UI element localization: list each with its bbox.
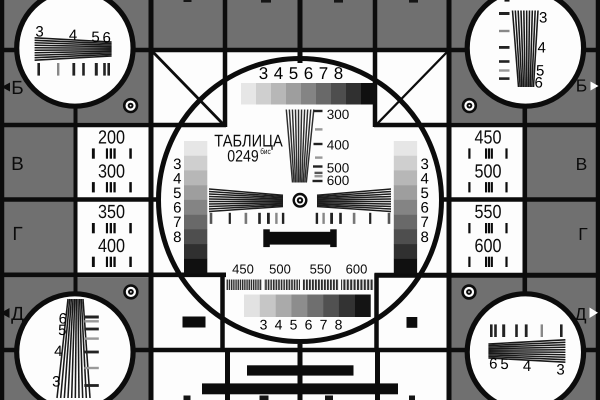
svg-text:300: 300 <box>327 107 350 122</box>
svg-text:6: 6 <box>103 30 111 47</box>
svg-text:8: 8 <box>421 229 429 246</box>
svg-text:3: 3 <box>539 10 547 27</box>
svg-text:Г: Г <box>578 224 588 244</box>
svg-text:В: В <box>576 154 588 174</box>
svg-text:600: 600 <box>327 173 350 188</box>
svg-text:8: 8 <box>334 64 343 83</box>
svg-text:4: 4 <box>69 27 77 44</box>
svg-text:Б: Б <box>576 76 587 96</box>
svg-text:550: 550 <box>475 202 502 223</box>
svg-text:В: В <box>11 154 24 175</box>
svg-text:6: 6 <box>304 64 313 83</box>
svg-text:5: 5 <box>500 356 508 373</box>
svg-text:7: 7 <box>319 64 328 83</box>
svg-text:3: 3 <box>35 24 43 41</box>
svg-text:450: 450 <box>232 262 254 277</box>
svg-text:350: 350 <box>98 202 125 223</box>
svg-text:Г: Г <box>12 224 22 245</box>
svg-text:Д: Д <box>575 304 587 324</box>
svg-text:600: 600 <box>346 262 368 277</box>
svg-text:450: 450 <box>475 128 502 149</box>
svg-text:4: 4 <box>523 358 531 375</box>
svg-text:400: 400 <box>327 138 350 153</box>
svg-text:500: 500 <box>269 262 291 277</box>
svg-text:8: 8 <box>173 229 181 246</box>
svg-text:6: 6 <box>535 75 543 92</box>
svg-text:300: 300 <box>98 161 125 182</box>
svg-text:550: 550 <box>310 262 332 277</box>
svg-text:5: 5 <box>91 29 99 46</box>
svg-text:3: 3 <box>260 317 268 333</box>
svg-text:200: 200 <box>98 128 125 149</box>
svg-text:Д: Д <box>11 304 24 325</box>
svg-text:4: 4 <box>54 343 62 360</box>
svg-text:3: 3 <box>556 362 564 379</box>
svg-text:4: 4 <box>538 40 546 57</box>
svg-text:6: 6 <box>305 317 313 333</box>
svg-text:5: 5 <box>58 322 66 339</box>
svg-text:0249: 0249 <box>227 147 259 165</box>
svg-text:4: 4 <box>274 64 283 83</box>
svg-text:600: 600 <box>475 236 502 257</box>
svg-text:бис: бис <box>260 147 271 156</box>
svg-text:5: 5 <box>290 317 298 333</box>
svg-text:8: 8 <box>335 317 343 333</box>
svg-text:500: 500 <box>475 161 502 182</box>
svg-text:7: 7 <box>320 317 328 333</box>
svg-text:400: 400 <box>98 236 125 257</box>
svg-text:6: 6 <box>489 355 497 372</box>
svg-text:5: 5 <box>289 64 298 83</box>
svg-text:Б: Б <box>11 78 23 99</box>
svg-text:3: 3 <box>52 374 60 391</box>
svg-text:3: 3 <box>259 64 268 83</box>
svg-text:4: 4 <box>275 317 283 333</box>
